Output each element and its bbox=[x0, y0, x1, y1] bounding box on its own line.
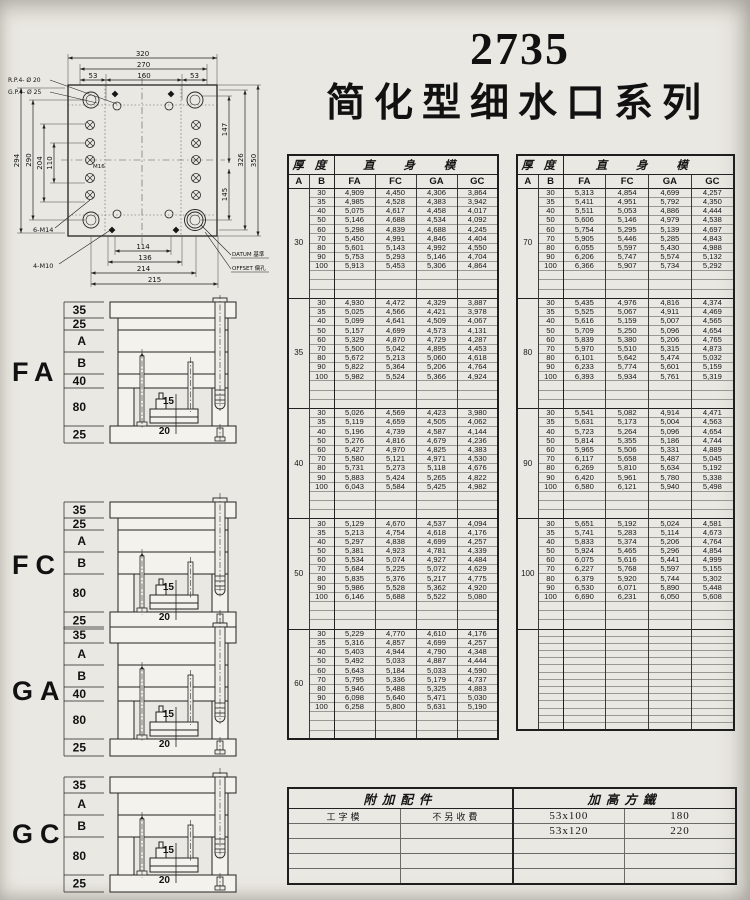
price-value: 5,025 bbox=[334, 307, 375, 316]
plate-dim-label: 35 bbox=[73, 503, 87, 517]
price-value: 4,659 bbox=[375, 418, 416, 427]
empty-cell bbox=[649, 399, 692, 408]
straight-mold-header: 直 身 模 bbox=[563, 155, 734, 174]
price-value: 5,298 bbox=[334, 225, 375, 234]
price-value: 4,566 bbox=[375, 307, 416, 316]
price-value: 5,143 bbox=[375, 243, 416, 252]
column-header-fa: FA bbox=[334, 174, 375, 188]
price-value: 6,101 bbox=[563, 353, 606, 362]
price-value: 4,857 bbox=[375, 638, 416, 647]
empty-cell bbox=[691, 651, 734, 658]
empty-cell bbox=[375, 601, 416, 610]
price-value: 4,816 bbox=[649, 298, 692, 307]
empty-cell bbox=[457, 500, 498, 509]
price-value: 6,233 bbox=[563, 363, 606, 372]
price-value: 4,927 bbox=[416, 556, 457, 565]
thickness-b-value: 35 bbox=[309, 528, 334, 537]
price-value: 5,159 bbox=[606, 317, 649, 326]
price-value: 5,446 bbox=[606, 234, 649, 243]
empty-cell bbox=[691, 381, 734, 390]
price-value: 4,909 bbox=[334, 188, 375, 197]
price-value: 4,914 bbox=[649, 409, 692, 418]
price-value: 5,030 bbox=[457, 693, 498, 702]
empty-cell bbox=[691, 629, 734, 636]
section-label: GC bbox=[12, 819, 67, 850]
price-value: 4,729 bbox=[416, 335, 457, 344]
price-value: 5,283 bbox=[606, 528, 649, 537]
empty-cell bbox=[334, 712, 375, 721]
price-value: 5,250 bbox=[606, 326, 649, 335]
empty-cell bbox=[649, 611, 692, 620]
price-value: 4,423 bbox=[416, 409, 457, 418]
dimension-label: 114 bbox=[136, 243, 150, 251]
empty-cell bbox=[309, 280, 334, 289]
price-value: 4,971 bbox=[416, 454, 457, 463]
empty-cell bbox=[309, 381, 334, 390]
empty-cell bbox=[538, 381, 563, 390]
empty-cell bbox=[538, 399, 563, 408]
empty-cell bbox=[691, 636, 734, 643]
empty-cell bbox=[538, 390, 563, 399]
price-value: 5,179 bbox=[416, 675, 457, 684]
price-value: 5,053 bbox=[606, 206, 649, 215]
empty-cell bbox=[606, 280, 649, 289]
empty-cell bbox=[606, 658, 649, 665]
price-value: 5,403 bbox=[334, 647, 375, 656]
price-value: 4,610 bbox=[416, 629, 457, 638]
thickness-b-value: 80 bbox=[309, 684, 334, 693]
thickness-a-value: 35 bbox=[288, 298, 309, 408]
price-value: 5,940 bbox=[649, 482, 692, 491]
price-value: 5,173 bbox=[606, 418, 649, 427]
price-value: 5,075 bbox=[334, 206, 375, 215]
price-value: 4,754 bbox=[375, 528, 416, 537]
price-value: 5,192 bbox=[691, 464, 734, 473]
empty-cell bbox=[606, 708, 649, 715]
price-value: 4,822 bbox=[457, 473, 498, 482]
thickness-a-value: 40 bbox=[288, 409, 309, 519]
price-value: 5,146 bbox=[606, 216, 649, 225]
empty-cell bbox=[375, 390, 416, 399]
price-value: 4,920 bbox=[457, 583, 498, 592]
thickness-b-value: 40 bbox=[538, 206, 563, 215]
price-value: 6,580 bbox=[563, 482, 606, 491]
price-value: 6,206 bbox=[563, 252, 606, 261]
thickness-b-value: 30 bbox=[309, 298, 334, 307]
empty-cell bbox=[375, 271, 416, 280]
plate-dim-label: 25 bbox=[73, 517, 87, 531]
empty-cell bbox=[416, 730, 457, 739]
price-value: 5,643 bbox=[334, 666, 375, 675]
price-value: 6,071 bbox=[606, 583, 649, 592]
price-value: 5,296 bbox=[649, 546, 692, 555]
price-value: 5,435 bbox=[563, 298, 606, 307]
price-value: 4,421 bbox=[416, 307, 457, 316]
price-value: 5,331 bbox=[649, 445, 692, 454]
rp-callout: R.P.4- Ø 20 bbox=[8, 77, 41, 84]
inner-dim-15: 15 bbox=[163, 396, 175, 407]
price-value: 5,768 bbox=[606, 565, 649, 574]
price-value: 5,986 bbox=[334, 583, 375, 592]
price-value: 5,146 bbox=[334, 216, 375, 225]
empty-cell bbox=[375, 289, 416, 298]
price-value: 5,206 bbox=[416, 363, 457, 372]
thickness-b-value: 80 bbox=[309, 464, 334, 473]
price-value: 5,688 bbox=[375, 592, 416, 601]
price-value: 6,366 bbox=[563, 262, 606, 271]
empty-cell bbox=[563, 715, 606, 722]
price-value: 5,905 bbox=[563, 234, 606, 243]
price-value: 4,537 bbox=[416, 519, 457, 528]
price-value: 5,934 bbox=[606, 372, 649, 381]
price-value: 5,114 bbox=[649, 528, 692, 537]
price-value: 5,744 bbox=[649, 574, 692, 583]
price-value: 4,094 bbox=[457, 519, 498, 528]
empty-cell bbox=[649, 636, 692, 643]
price-value: 5,835 bbox=[334, 574, 375, 583]
empty-cell bbox=[538, 715, 563, 722]
thickness-b-value: 30 bbox=[538, 519, 563, 528]
empty-cell bbox=[416, 500, 457, 509]
empty-cell bbox=[649, 679, 692, 686]
empty-cell bbox=[563, 611, 606, 620]
price-value: 4,825 bbox=[416, 445, 457, 454]
price-value: 5,747 bbox=[606, 252, 649, 261]
thickness-b-value: 50 bbox=[538, 436, 563, 445]
empty-cell bbox=[538, 651, 563, 658]
empty-cell bbox=[513, 839, 625, 854]
m10-callout: 4-M10 bbox=[33, 262, 53, 270]
mold-diagram-gc: 35AB80251520 bbox=[58, 744, 250, 898]
price-value: 4,176 bbox=[457, 528, 498, 537]
price-value: 5,795 bbox=[334, 675, 375, 684]
dimension-label: 350 bbox=[250, 154, 258, 167]
empty-cell bbox=[400, 824, 512, 839]
thickness-b-value: 70 bbox=[538, 344, 563, 353]
price-value: 4,450 bbox=[375, 188, 416, 197]
price-value: 4,383 bbox=[457, 445, 498, 454]
empty-cell bbox=[691, 280, 734, 289]
empty-cell bbox=[606, 289, 649, 298]
price-value: 5,184 bbox=[375, 666, 416, 675]
price-value: 5,033 bbox=[375, 657, 416, 666]
thickness-b-value: 50 bbox=[309, 216, 334, 225]
price-value: 6,231 bbox=[606, 592, 649, 601]
price-value: 4,067 bbox=[457, 317, 498, 326]
empty-cell bbox=[691, 611, 734, 620]
empty-cell bbox=[416, 721, 457, 730]
empty-cell bbox=[691, 658, 734, 665]
empty-cell bbox=[457, 510, 498, 519]
column-header-ga: GA bbox=[649, 174, 692, 188]
price-value: 4,970 bbox=[375, 445, 416, 454]
empty-cell bbox=[375, 510, 416, 519]
empty-cell bbox=[400, 854, 512, 869]
empty-cell bbox=[538, 620, 563, 629]
empty-cell bbox=[563, 271, 606, 280]
price-value: 4,444 bbox=[457, 657, 498, 666]
empty-cell bbox=[606, 390, 649, 399]
empty-cell bbox=[606, 399, 649, 408]
price-value: 5,276 bbox=[334, 436, 375, 445]
price-value: 5,374 bbox=[606, 537, 649, 546]
price-value: 5,315 bbox=[649, 344, 692, 353]
price-value: 5,217 bbox=[416, 574, 457, 583]
empty-cell bbox=[375, 721, 416, 730]
price-value: 5,146 bbox=[416, 252, 457, 261]
price-value: 5,080 bbox=[457, 592, 498, 601]
empty-cell bbox=[563, 390, 606, 399]
empty-cell bbox=[649, 390, 692, 399]
price-value: 4,911 bbox=[649, 307, 692, 316]
empty-cell bbox=[691, 715, 734, 722]
price-value: 5,082 bbox=[606, 409, 649, 418]
price-value: 5,381 bbox=[334, 546, 375, 555]
empty-cell bbox=[334, 381, 375, 390]
empty-cell bbox=[691, 510, 734, 519]
riser-size: 53x120 bbox=[513, 824, 625, 839]
price-value: 5,774 bbox=[606, 363, 649, 372]
thickness-b-value: 80 bbox=[538, 353, 563, 362]
price-value: 5,074 bbox=[375, 556, 416, 565]
price-value: 4,699 bbox=[416, 638, 457, 647]
price-value: 5,883 bbox=[334, 473, 375, 482]
price-value: 4,843 bbox=[691, 234, 734, 243]
empty-cell bbox=[400, 839, 512, 854]
price-value: 4,245 bbox=[457, 225, 498, 234]
empty-cell bbox=[649, 722, 692, 729]
thickness-b-value: 60 bbox=[538, 335, 563, 344]
empty-cell bbox=[457, 280, 498, 289]
price-value: 3,864 bbox=[457, 188, 498, 197]
empty-cell bbox=[416, 611, 457, 620]
thickness-b-value: 70 bbox=[538, 454, 563, 463]
thickness-b-value: 35 bbox=[538, 197, 563, 206]
price-table-a30-60: 厚 度直 身 模ABFAFCGAGC30304,9094,4504,3063,8… bbox=[287, 154, 499, 740]
empty-cell bbox=[538, 665, 563, 672]
thickness-b-value: 70 bbox=[309, 344, 334, 353]
empty-cell bbox=[649, 694, 692, 701]
empty-cell bbox=[563, 510, 606, 519]
thickness-b-value: 40 bbox=[309, 647, 334, 656]
thickness-b-value: 35 bbox=[538, 418, 563, 427]
thickness-b-value: 100 bbox=[309, 592, 334, 601]
price-value: 4,992 bbox=[416, 243, 457, 252]
thickness-b-value: 35 bbox=[309, 197, 334, 206]
empty-cell bbox=[649, 620, 692, 629]
thickness-b-value: 90 bbox=[309, 693, 334, 702]
catalog-page: 3202705316053294290204110147145326350114… bbox=[0, 0, 750, 900]
empty-cell bbox=[538, 601, 563, 610]
empty-cell bbox=[416, 712, 457, 721]
section-label: FC bbox=[12, 550, 62, 581]
price-value: 4,873 bbox=[691, 344, 734, 353]
thickness-b-value: 100 bbox=[538, 372, 563, 381]
empty-cell bbox=[606, 694, 649, 701]
price-value: 5,336 bbox=[375, 675, 416, 684]
price-value: 4,679 bbox=[416, 436, 457, 445]
price-value: 5,213 bbox=[375, 353, 416, 362]
price-value: 6,117 bbox=[563, 454, 606, 463]
price-value: 4,991 bbox=[375, 234, 416, 243]
mold-section-ga: 35AB4080251520GA bbox=[0, 608, 260, 762]
thickness-b-value: 90 bbox=[309, 252, 334, 261]
price-value: 5,651 bbox=[563, 519, 606, 528]
empty-cell bbox=[691, 643, 734, 650]
price-value: 5,474 bbox=[649, 353, 692, 362]
empty-cell bbox=[649, 629, 692, 636]
dimension-label: 290 bbox=[25, 153, 33, 166]
empty-cell bbox=[538, 491, 563, 500]
empty-cell bbox=[624, 854, 736, 869]
price-value: 5,206 bbox=[649, 537, 692, 546]
empty-cell bbox=[288, 839, 400, 854]
thickness-b-value: 90 bbox=[309, 363, 334, 372]
price-value: 4,654 bbox=[691, 326, 734, 335]
price-value: 4,770 bbox=[375, 629, 416, 638]
price-value: 4,590 bbox=[457, 666, 498, 675]
empty-cell bbox=[649, 715, 692, 722]
price-value: 4,886 bbox=[649, 206, 692, 215]
price-value: 5,024 bbox=[649, 519, 692, 528]
empty-cell bbox=[563, 636, 606, 643]
price-value: 5,441 bbox=[649, 556, 692, 565]
price-value: 6,269 bbox=[563, 464, 606, 473]
thickness-b-value: 50 bbox=[309, 546, 334, 555]
empty-cell bbox=[691, 399, 734, 408]
thickness-b-value: 40 bbox=[309, 206, 334, 215]
price-value: 4,530 bbox=[457, 454, 498, 463]
dimension-label: 53 bbox=[190, 72, 199, 80]
column-header-fc: FC bbox=[606, 174, 649, 188]
empty-cell bbox=[649, 271, 692, 280]
price-value: 6,393 bbox=[563, 372, 606, 381]
dimension-label: 147 bbox=[221, 123, 229, 136]
price-value: 4,569 bbox=[375, 409, 416, 418]
dimension-label: 270 bbox=[137, 61, 150, 69]
thickness-b-value: 70 bbox=[309, 565, 334, 574]
empty-cell bbox=[334, 721, 375, 730]
thickness-b-value: 70 bbox=[309, 234, 334, 243]
empty-cell bbox=[563, 500, 606, 509]
price-value: 4,676 bbox=[457, 464, 498, 473]
empty-cell bbox=[691, 701, 734, 708]
inner-dim-20: 20 bbox=[159, 875, 171, 886]
price-value: 4,781 bbox=[416, 546, 457, 555]
thickness-header: 厚 度 bbox=[288, 155, 334, 174]
empty-cell bbox=[649, 687, 692, 694]
price-value: 4,505 bbox=[416, 418, 457, 427]
plate-dim-label: 25 bbox=[73, 428, 87, 442]
thickness-b-value: 40 bbox=[538, 427, 563, 436]
plate-dim-label: A bbox=[77, 647, 86, 661]
price-value: 6,420 bbox=[563, 473, 606, 482]
price-value: 5,273 bbox=[375, 464, 416, 473]
empty-cell bbox=[309, 390, 334, 399]
price-value: 5,574 bbox=[649, 252, 692, 261]
price-value: 5,601 bbox=[334, 243, 375, 252]
empty-cell bbox=[457, 730, 498, 739]
price-value: 4,775 bbox=[457, 574, 498, 583]
empty-cell bbox=[457, 271, 498, 280]
price-value: 5,364 bbox=[375, 363, 416, 372]
price-value: 4,838 bbox=[375, 537, 416, 546]
price-value: 4,383 bbox=[416, 197, 457, 206]
inner-dim-15: 15 bbox=[163, 582, 175, 593]
empty-cell bbox=[309, 712, 334, 721]
price-value: 5,631 bbox=[416, 703, 457, 712]
empty-cell bbox=[457, 721, 498, 730]
empty-cell bbox=[538, 510, 563, 519]
price-value: 5,067 bbox=[606, 307, 649, 316]
thickness-a-value: 30 bbox=[288, 188, 309, 298]
empty-cell bbox=[538, 679, 563, 686]
price-value: 4,846 bbox=[416, 234, 457, 243]
empty-cell bbox=[649, 651, 692, 658]
plate-dim-label: 40 bbox=[73, 374, 87, 388]
price-value: 5,800 bbox=[375, 703, 416, 712]
price-value: 5,072 bbox=[416, 565, 457, 574]
thickness-a-value: 80 bbox=[517, 298, 538, 408]
thickness-b-value: 35 bbox=[538, 528, 563, 537]
dimension-label: 320 bbox=[136, 50, 149, 58]
empty-cell bbox=[649, 665, 692, 672]
price-value: 5,814 bbox=[563, 436, 606, 445]
empty-cell bbox=[563, 701, 606, 708]
price-value: 5,522 bbox=[416, 592, 457, 601]
price-value: 4,895 bbox=[416, 344, 457, 353]
price-value: 5,492 bbox=[334, 657, 375, 666]
price-value: 4,854 bbox=[606, 188, 649, 197]
empty-cell bbox=[691, 289, 734, 298]
thickness-b-value: 35 bbox=[309, 638, 334, 647]
price-value: 6,690 bbox=[563, 592, 606, 601]
price-value: 4,329 bbox=[416, 298, 457, 307]
empty-cell bbox=[606, 601, 649, 610]
empty-cell bbox=[606, 672, 649, 679]
price-value: 5,471 bbox=[416, 693, 457, 702]
price-value: 5,424 bbox=[375, 473, 416, 482]
price-value: 4,339 bbox=[457, 546, 498, 555]
thickness-b-value: 60 bbox=[309, 335, 334, 344]
price-value: 5,658 bbox=[606, 454, 649, 463]
empty-cell bbox=[563, 289, 606, 298]
model-number: 2735 bbox=[300, 22, 740, 75]
price-value: 5,430 bbox=[649, 243, 692, 252]
thickness-b-value: 40 bbox=[538, 317, 563, 326]
price-value: 5,376 bbox=[375, 574, 416, 583]
thickness-b-value: 30 bbox=[309, 188, 334, 197]
price-value: 5,297 bbox=[334, 537, 375, 546]
thickness-b-value: 60 bbox=[309, 666, 334, 675]
price-value: 5,450 bbox=[334, 234, 375, 243]
price-value: 5,634 bbox=[649, 464, 692, 473]
empty-cell bbox=[334, 500, 375, 509]
price-value: 4,764 bbox=[457, 363, 498, 372]
empty-cell bbox=[649, 672, 692, 679]
plate-dim-label: 25 bbox=[73, 317, 87, 331]
empty-cell bbox=[563, 280, 606, 289]
mold-section-gc: 35AB80251520GC bbox=[0, 744, 260, 898]
price-value: 5,448 bbox=[691, 583, 734, 592]
price-value: 5,229 bbox=[334, 629, 375, 638]
thickness-b-value: 30 bbox=[309, 519, 334, 528]
i-beam-mold-label: 工字模 bbox=[288, 809, 400, 824]
price-value: 4,739 bbox=[375, 427, 416, 436]
inner-dim-15: 15 bbox=[163, 845, 175, 856]
thickness-b-value: 50 bbox=[309, 436, 334, 445]
empty-cell bbox=[538, 658, 563, 665]
